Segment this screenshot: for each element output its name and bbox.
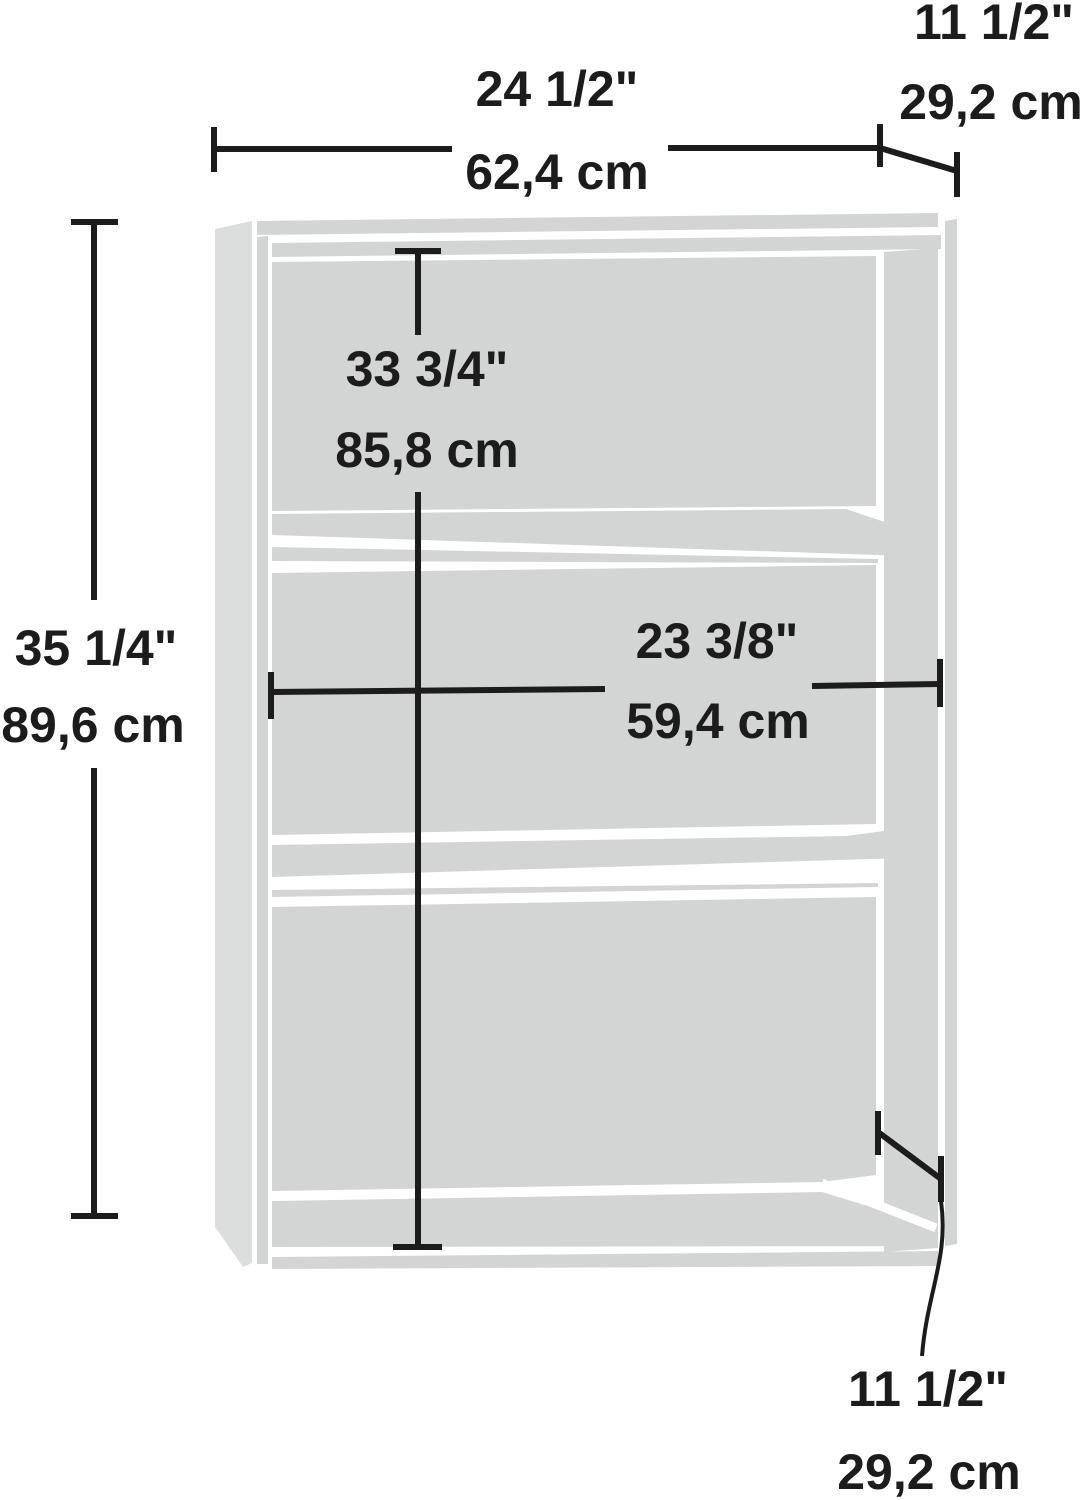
overall-width-inches-label: 24 1/2" <box>476 61 639 117</box>
overall-height-metric-label: 89,6 cm <box>1 697 184 753</box>
bookcase-drawing <box>215 213 957 1269</box>
bookcase-top-front-edge <box>272 235 941 257</box>
shelf-2-bottom-edge <box>272 883 878 897</box>
bottom-depth-metric-label: 29,2 cm <box>837 1444 1020 1500</box>
inner-width-line-right <box>812 684 940 686</box>
bookcase-right-stile <box>884 248 938 1252</box>
bookcase-left-stile <box>257 236 268 1264</box>
interior-height-inches-label: 33 3/4" <box>346 341 509 397</box>
bookcase-bottom-board <box>272 1192 936 1247</box>
bookcase-left-side-panel <box>215 221 252 1267</box>
interior-height-metric-label: 85,8 cm <box>335 422 518 478</box>
overall-width-metric-label: 62,4 cm <box>465 144 648 200</box>
top-depth-inches-label: 11 1/2" <box>914 0 1074 50</box>
top-depth-diagonal <box>880 148 957 171</box>
overall-height-inches-label: 35 1/4" <box>15 620 178 676</box>
bookcase-top-board <box>257 213 938 235</box>
bookcase-right-edge-strip <box>945 219 957 1246</box>
bookcase-base-strip <box>272 1251 938 1269</box>
top-depth-metric-label: 29,2 cm <box>899 74 1082 130</box>
inner-width-line-left <box>271 689 605 692</box>
bookcase-dimension-diagram: 24 1/2" 62,4 cm 11 1/2" 29,2 cm 35 1/4" … <box>0 0 1085 1500</box>
interior-width-metric-label: 59,4 cm <box>626 693 809 749</box>
bottom-depth-inches-label: 11 1/2" <box>848 1361 1008 1417</box>
compartment-3 <box>272 897 876 1191</box>
interior-width-inches-label: 23 3/8" <box>636 613 799 669</box>
